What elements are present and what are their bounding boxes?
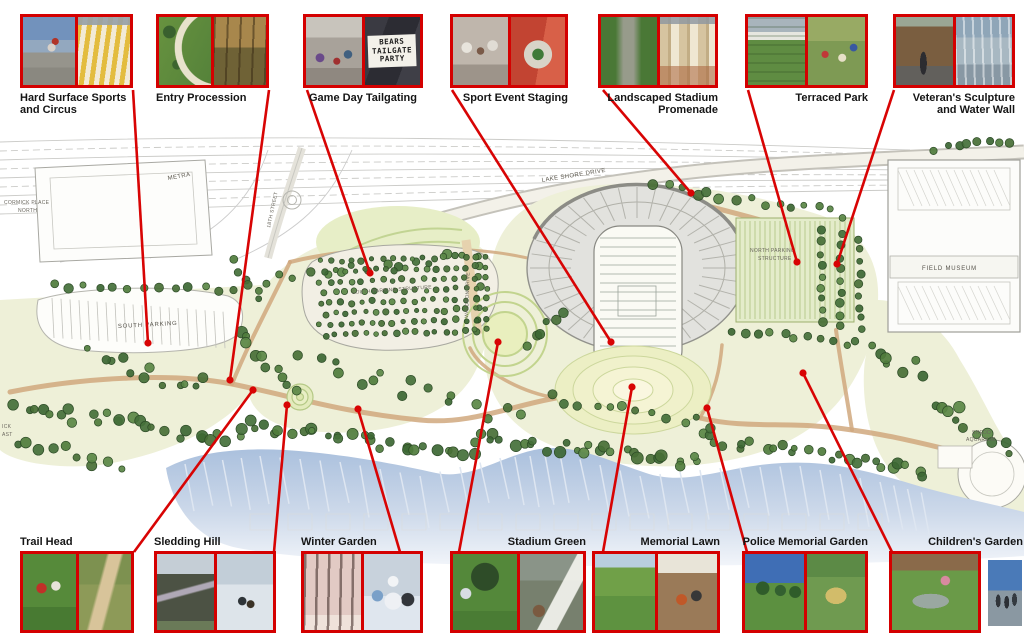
- callout-label: Entry Procession: [156, 92, 269, 104]
- callout-trail-head[interactable]: Trail Head: [20, 536, 134, 633]
- callout-label: Hard Surface Sports and Circus: [20, 92, 133, 117]
- callout-stadium-green[interactable]: Stadium Green: [450, 536, 586, 633]
- label-field-museum: FIELD MUSEUM: [922, 266, 977, 272]
- photo-winter-sledding: [217, 554, 274, 630]
- callout-landscaped-stadium-promenade[interactable]: Landscaped Stadium Promenade: [598, 14, 718, 117]
- photo-colonnade-rendering: [660, 17, 716, 85]
- callout-label: Children's Garden: [889, 536, 1023, 548]
- photo-event-crowd: [520, 554, 584, 630]
- photo-garden-grasses: [807, 554, 866, 630]
- callout-entry-procession[interactable]: Entry Procession: [156, 14, 269, 104]
- photo-trail-path: [79, 554, 132, 630]
- photo-pair: [745, 14, 868, 88]
- photo-circus-tents: [78, 17, 130, 85]
- photo-egg-sculptures: [988, 560, 1022, 626]
- photo-bears-tailgate-sign: BEARS TAILGATE PARTY: [365, 17, 421, 85]
- photo-kids-sculpture: [892, 554, 978, 630]
- callout-label: Winter Garden: [301, 536, 423, 548]
- callout-childrens-garden[interactable]: Children's Garden: [889, 536, 1023, 633]
- photo-memorial-trees: [745, 554, 804, 630]
- callout-label: Stadium Green: [450, 536, 586, 548]
- photo-pair: [450, 551, 586, 633]
- callout-label: Veteran's Sculpture and Water Wall: [893, 92, 1015, 117]
- svg-text:NORTH: NORTH: [18, 208, 37, 214]
- callout-sport-event-staging[interactable]: Sport Event Staging: [450, 14, 568, 104]
- photo-tailgate-crowd: [306, 17, 362, 85]
- photo-band-stage: [658, 554, 718, 630]
- south-parking-lot: [37, 288, 243, 352]
- photo-water-wall: [896, 17, 953, 85]
- photo-marathon-runners: [453, 17, 508, 85]
- callout-sledding-hill[interactable]: Sledding Hill: [154, 536, 276, 633]
- callout-winter-garden[interactable]: Winter Garden: [301, 536, 423, 633]
- svg-text:AST: AST: [2, 432, 13, 438]
- callout-label: Sledding Hill: [154, 536, 276, 548]
- callout-label: Sport Event Staging: [450, 92, 568, 104]
- callout-police-memorial-garden[interactable]: Police Memorial Garden: [742, 536, 868, 633]
- svg-text:AQUARIUM: AQUARIUM: [966, 437, 995, 443]
- svg-text:STRUCTURE: STRUCTURE: [758, 256, 792, 262]
- photo-pair: [20, 551, 134, 633]
- photo-lawn-tents: [453, 554, 517, 630]
- label-mccormick-north: CORMICK PLACE: [4, 200, 50, 206]
- photo-pair: [893, 14, 1015, 88]
- label-shedd-aquarium: SHEDD: [972, 430, 991, 436]
- photo-pair: BEARS TAILGATE PARTY: [303, 14, 423, 88]
- photo-aerial-park-path: [159, 17, 211, 85]
- photo-picnic-crowd: [808, 17, 865, 85]
- callout-label: Police Memorial Garden: [742, 536, 868, 548]
- photo-pair: [156, 14, 269, 88]
- photo-autumn-promenade: [214, 17, 266, 85]
- callout-memorial-lawn[interactable]: Memorial Lawn: [592, 536, 720, 633]
- callout-label: Game Day Tailgating: [303, 92, 423, 104]
- callout-terraced-park[interactable]: Terraced Park: [745, 14, 868, 104]
- callout-veterans-sculpture-water-wall[interactable]: Veteran's Sculpture and Water Wall: [893, 14, 1015, 117]
- photo-water-sculpture: [956, 17, 1013, 85]
- callout-hard-surface-sports-and-circus[interactable]: Hard Surface Sports and Circus: [20, 14, 133, 117]
- north-parking-structure: [736, 218, 854, 322]
- bears-tailgate-sign-text: BEARS TAILGATE PARTY: [368, 34, 417, 68]
- photo-wheelchair-racer: [511, 17, 566, 85]
- photo-terraced-lawn: [748, 17, 805, 85]
- photo-basketball-court: [23, 17, 75, 85]
- photo-pair: [889, 551, 981, 633]
- callout-label: Landscaped Stadium Promenade: [598, 92, 718, 117]
- photo-rolling-lawn: [595, 554, 655, 630]
- callout-label: Trail Head: [20, 536, 134, 548]
- photo-pair: [154, 551, 276, 633]
- photo-pair: [20, 14, 133, 88]
- photo-snowy-woods: [304, 554, 361, 630]
- photo-pair: [301, 551, 423, 633]
- photo-cyclists: [23, 554, 76, 630]
- callout-label: Terraced Park: [745, 92, 868, 104]
- photo-pair: [450, 14, 568, 88]
- photo-snowman: [364, 554, 421, 630]
- callout-game-day-tailgating[interactable]: BEARS TAILGATE PARTY Game Day Tailgating: [303, 14, 423, 104]
- park-master-plan-page: CORMICK PLACE NORTH METRA 18TH STREET LA…: [0, 0, 1024, 637]
- callout-label: Memorial Lawn: [592, 536, 720, 548]
- photo-tree-lined-walk: [601, 17, 657, 85]
- photo-pair: [742, 551, 868, 633]
- label-north-parking-structure: NORTH PARKING: [750, 248, 795, 254]
- label-edge-fragment: ICK: [2, 424, 12, 430]
- photo-pair: [598, 14, 718, 88]
- photo-hill-mound: [157, 554, 214, 630]
- field-museum-building: [888, 160, 1020, 332]
- photo-pair: [592, 551, 720, 633]
